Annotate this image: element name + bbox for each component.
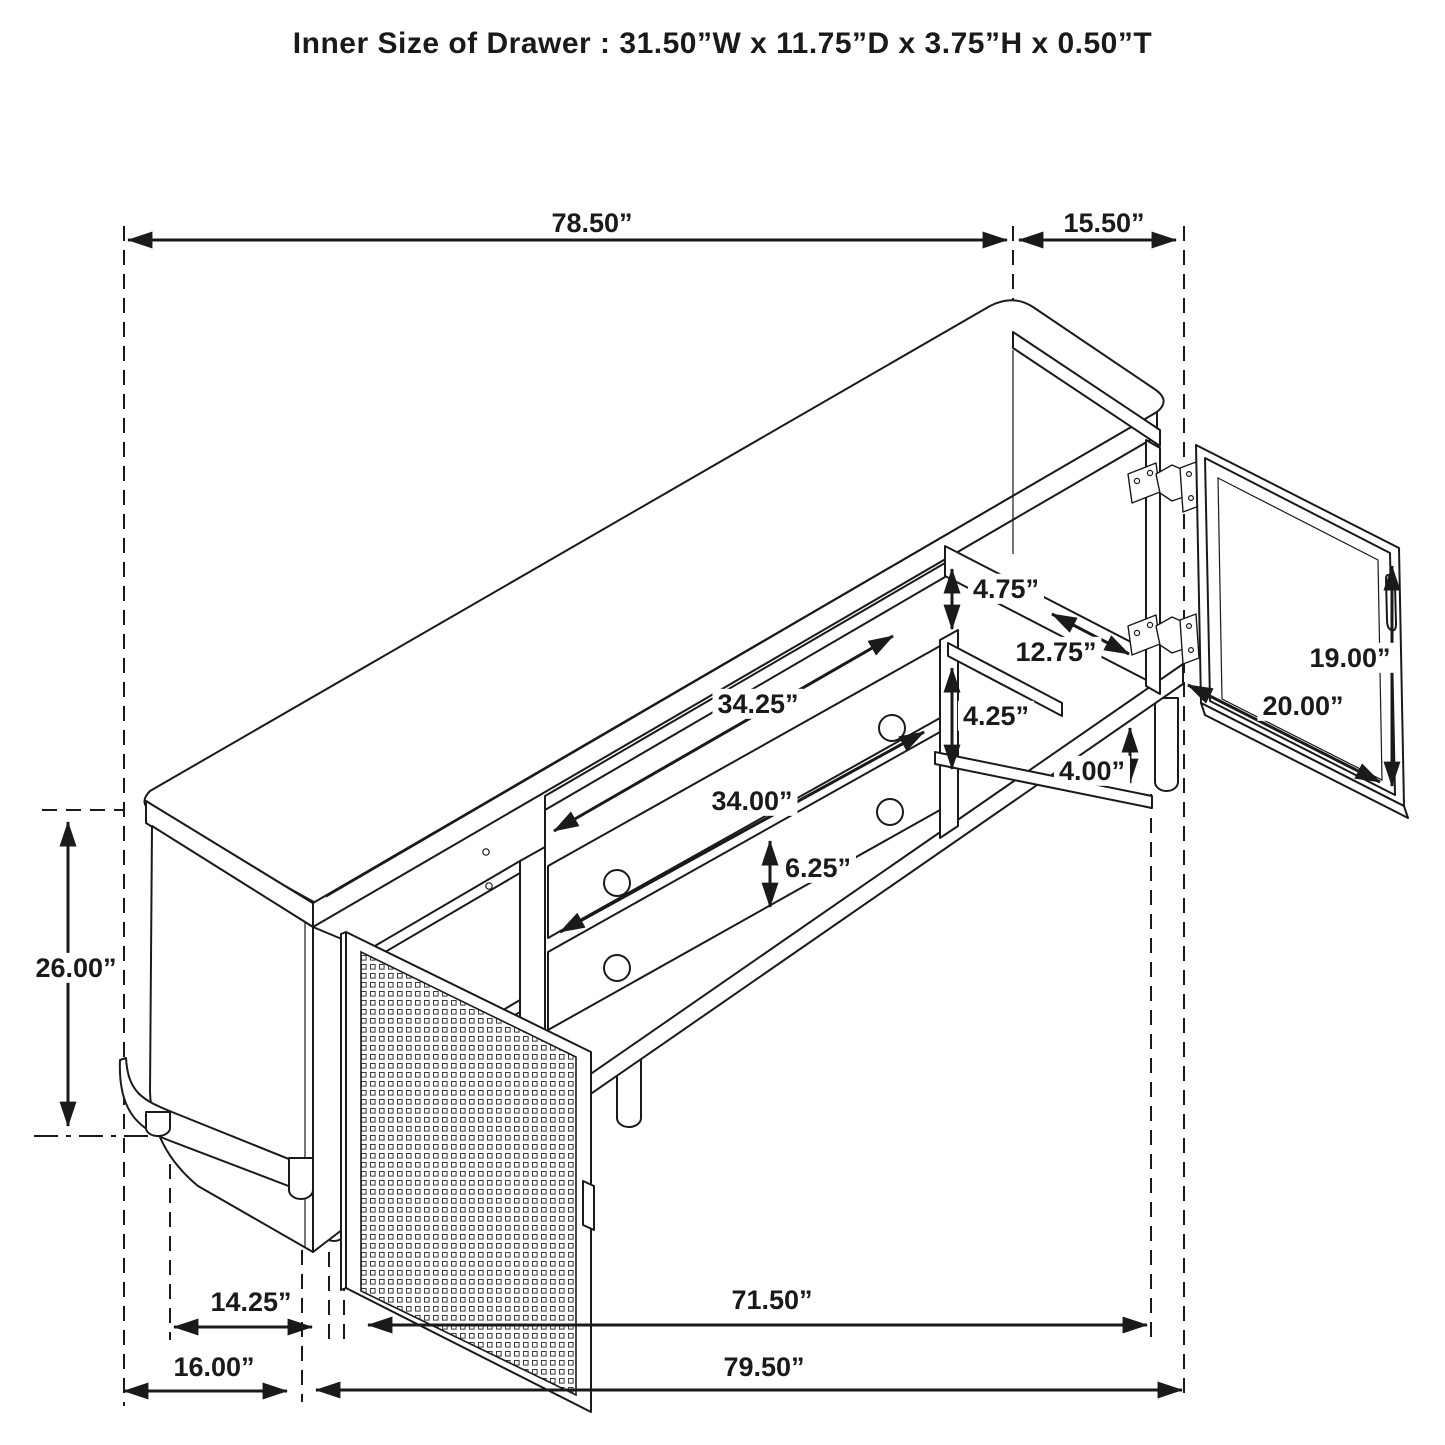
dim-label-4-25: 4.25” — [958, 701, 1034, 731]
cane-door-handle — [583, 1181, 594, 1230]
dim-label-19-00: 19.00” — [1304, 643, 1395, 673]
dim-label-20-00: 20.00” — [1257, 691, 1348, 721]
screw-dot — [483, 849, 489, 855]
page-title: Inner Size of Drawer : 31.50”W x 11.75”D… — [293, 27, 1152, 61]
center-divider-right — [940, 630, 958, 838]
left-front-leg — [289, 1158, 313, 1199]
cabinet-drawing — [120, 300, 1408, 1412]
left-back-leg — [146, 1112, 170, 1136]
dim-label-15-50: 15.50” — [1058, 208, 1149, 238]
drawer-knob — [604, 870, 630, 896]
dim-label-6-25: 6.25” — [780, 853, 856, 883]
dim-label-34-00: 34.00” — [706, 786, 797, 816]
dim-label-4-75: 4.75” — [968, 574, 1044, 604]
dim-label-4-00: 4.00” — [1054, 756, 1130, 786]
right-front-leg — [1155, 698, 1178, 791]
dim-label-26-00: 26.00” — [30, 953, 121, 983]
drawer-knob — [604, 955, 630, 981]
drawer-knob — [879, 715, 905, 741]
furniture-line-drawing — [0, 0, 1445, 1445]
dim-label-14-25: 14.25” — [205, 1287, 296, 1317]
dim-label-71-50: 71.50” — [726, 1285, 817, 1315]
right-door-open — [1196, 445, 1408, 818]
dim-label-34-25: 34.25” — [712, 689, 803, 719]
dim-label-78-50: 78.50” — [546, 208, 637, 238]
dim-label-79-50: 79.50” — [718, 1352, 809, 1382]
dim-label-12-75: 12.75” — [1010, 637, 1101, 667]
dim-label-16-00: 16.00” — [168, 1352, 259, 1382]
hinge-top — [1128, 462, 1199, 512]
drawer-knob — [877, 799, 903, 825]
screw-dot — [486, 883, 492, 889]
dimension-diagram-page: Inner Size of Drawer : 31.50”W x 11.75”D… — [0, 0, 1445, 1445]
